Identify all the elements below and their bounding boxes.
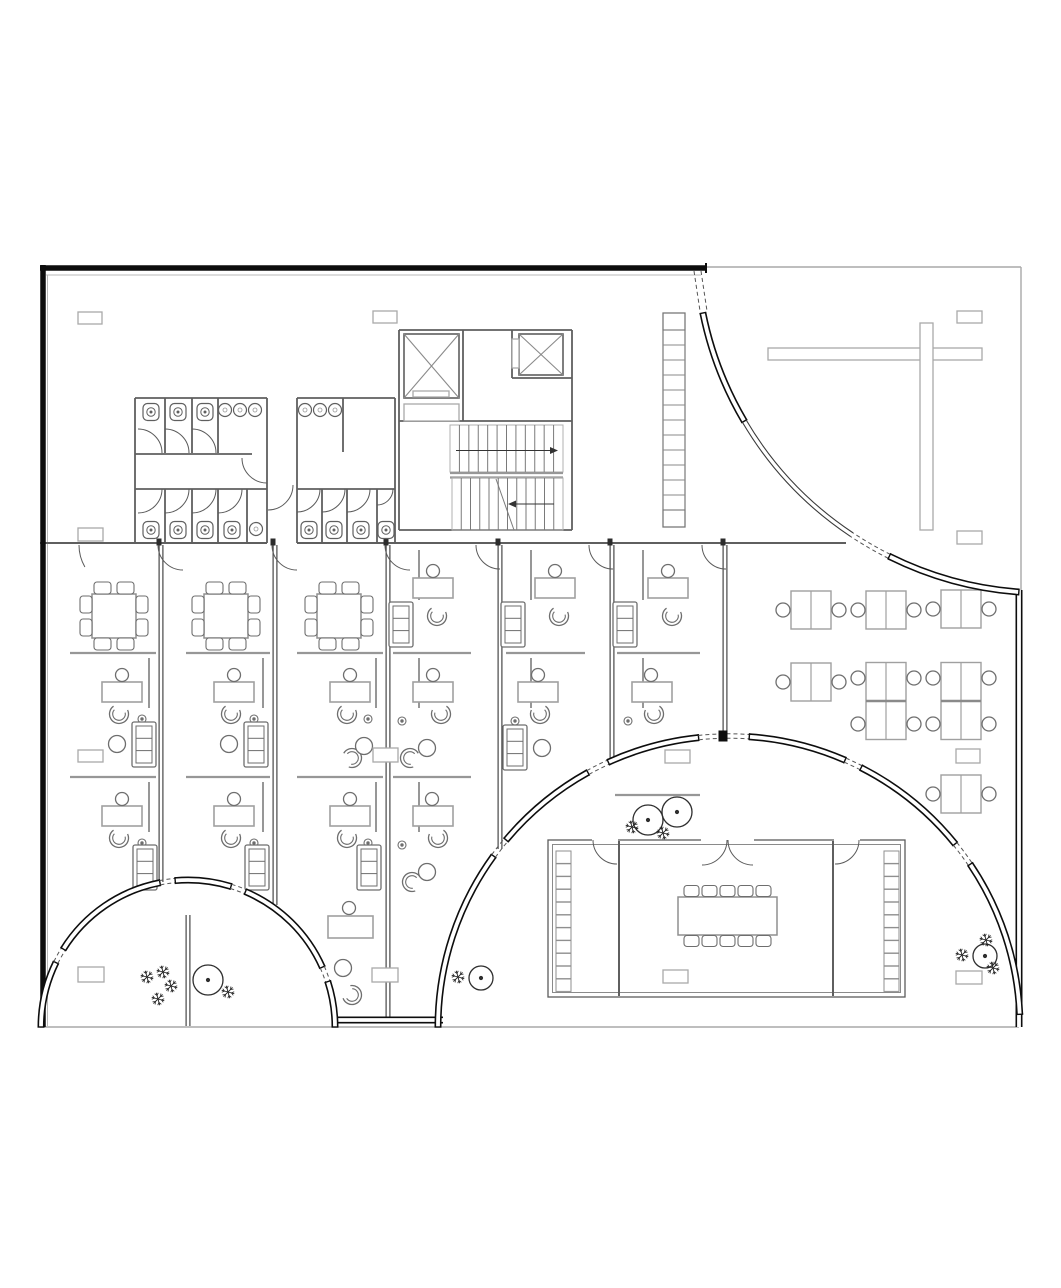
armchair: [666, 612, 679, 623]
armchair: [113, 834, 126, 845]
chair: [192, 596, 204, 613]
plant-pot: [253, 842, 255, 844]
chair: [926, 671, 940, 685]
armchair: [431, 612, 444, 623]
shrub: [166, 972, 169, 973]
chair: [192, 619, 204, 636]
shrub: [666, 833, 669, 834]
shrub: [980, 939, 983, 940]
cabinet: [372, 968, 398, 982]
shelf-unit: [556, 851, 571, 863]
dashed-guide: [726, 734, 749, 735]
shrub: [985, 934, 986, 937]
door-swing: [702, 840, 727, 865]
armchair: [225, 710, 238, 721]
curved-wall-segment: [970, 864, 1019, 1014]
door-swing: [702, 545, 726, 569]
door-swing: [377, 489, 393, 505]
cabinet: [956, 971, 982, 984]
office-desk: [632, 682, 672, 702]
chair: [136, 596, 148, 613]
shrub: [146, 971, 147, 974]
shrub: [457, 971, 458, 974]
cabinet: [663, 970, 688, 983]
round-table: [109, 736, 126, 753]
curved-wall-segment: [63, 883, 160, 949]
toilet: [177, 411, 179, 413]
wall-post: [719, 731, 727, 741]
shelf-unit: [884, 851, 899, 863]
toilet: [231, 529, 233, 531]
chair: [117, 582, 134, 594]
shrub: [174, 986, 177, 987]
chair: [926, 602, 940, 616]
chair: [361, 619, 373, 636]
shelf-unit: [884, 979, 899, 991]
cabinet: [768, 348, 982, 360]
chair: [426, 793, 439, 806]
office-desk: [413, 806, 453, 826]
round-table: [221, 736, 238, 753]
chair: [206, 582, 223, 594]
chair: [343, 902, 356, 915]
dashed-guide: [699, 738, 722, 739]
shelf-unit: [556, 953, 571, 965]
plant-pot: [141, 718, 143, 720]
shrub: [157, 971, 160, 972]
door-swing: [218, 489, 242, 513]
shelf-unit: [556, 928, 571, 940]
faces-layer: [46, 275, 701, 1026]
shelf-unit: [884, 902, 899, 914]
curved-wall-segment: [889, 556, 1019, 592]
door-swing: [347, 489, 370, 512]
chair: [832, 675, 846, 689]
shelf-unit: [556, 966, 571, 978]
shrub: [662, 827, 663, 830]
office-desk: [648, 578, 688, 598]
chair: [662, 565, 675, 578]
shelf-unit: [556, 864, 571, 876]
office-desk: [102, 806, 142, 826]
dashed-guide: [694, 271, 700, 311]
sink: [329, 404, 342, 417]
shelf-unit: [556, 877, 571, 889]
plant-pot: [367, 842, 369, 844]
shrub: [965, 955, 968, 956]
shelf-unit: [884, 941, 899, 953]
chair: [738, 886, 753, 897]
door-swing: [728, 840, 753, 865]
armchair: [553, 612, 566, 623]
chair: [319, 582, 336, 594]
door-swing: [165, 429, 189, 453]
plant-pot: [141, 842, 143, 844]
plant-pot: [401, 844, 403, 846]
curved-wall-segment: [245, 892, 322, 968]
shelf-unit: [884, 953, 899, 965]
chair: [549, 565, 562, 578]
cabinet: [78, 750, 103, 762]
conference-table: [678, 897, 777, 935]
shrub: [152, 998, 155, 999]
shelf-unit: [884, 915, 899, 927]
chair: [982, 787, 996, 801]
chair: [738, 936, 753, 947]
shrub: [141, 976, 144, 977]
office-desk: [330, 682, 370, 702]
chair: [248, 619, 260, 636]
dashed-guide: [160, 883, 175, 885]
direction-arrow: [508, 501, 516, 508]
wall-cap: [1019, 589, 1020, 596]
door-jamb: [721, 539, 725, 545]
door-swing: [192, 429, 216, 453]
door-swing: [268, 485, 293, 510]
shrub: [461, 977, 464, 978]
toilet: [150, 529, 152, 531]
door-swing: [593, 840, 617, 864]
shrub: [635, 827, 638, 828]
armchair: [113, 710, 126, 721]
door-jamb: [384, 539, 388, 545]
toilet: [204, 411, 206, 413]
office-desk: [535, 578, 575, 598]
armchair: [432, 834, 445, 845]
chair: [702, 936, 717, 947]
toilet: [333, 529, 335, 531]
office-desk: [214, 806, 254, 826]
chair: [305, 619, 317, 636]
curved-wall-segment: [438, 856, 494, 1027]
chair: [684, 886, 699, 897]
floor-plan-page: [0, 0, 1061, 1288]
door-swing: [835, 840, 859, 864]
shelf-unit: [556, 889, 571, 901]
chair: [982, 717, 996, 731]
shrub: [626, 826, 629, 827]
door-swing: [192, 489, 216, 513]
armchair: [435, 710, 448, 721]
shrub: [165, 985, 168, 986]
office-desk: [518, 682, 558, 702]
sink: [250, 523, 263, 536]
chair: [851, 671, 865, 685]
door-swing: [138, 489, 162, 513]
cabinet: [957, 531, 982, 544]
chair: [926, 717, 940, 731]
shrub: [962, 958, 963, 961]
curved-wall-segment: [970, 864, 1019, 1014]
cabinet: [78, 312, 102, 324]
plant-pot: [627, 720, 629, 722]
door-swing: [589, 545, 613, 569]
shelf-unit: [556, 941, 571, 953]
cabinet: [78, 528, 103, 541]
door-swing: [79, 545, 85, 567]
chair: [756, 886, 771, 897]
door-jamb: [157, 539, 161, 545]
door-swing: [138, 429, 162, 453]
shrub: [632, 830, 633, 833]
curved-wall-segment: [703, 313, 744, 421]
sink: [249, 404, 262, 417]
armchair: [341, 710, 354, 721]
office-desk: [413, 578, 453, 598]
dashed-guide: [846, 758, 862, 766]
shrub: [147, 980, 148, 983]
shrub: [150, 977, 153, 978]
curved-wall-segment: [506, 772, 588, 839]
shrub: [989, 940, 992, 941]
shelf-unit: [884, 889, 899, 901]
dashed-guide: [698, 734, 721, 736]
chair: [684, 936, 699, 947]
armchair: [347, 752, 358, 765]
chair: [926, 787, 940, 801]
cabinet: [413, 391, 449, 397]
shrub: [961, 949, 962, 952]
cabinet: [78, 967, 104, 982]
chair: [907, 603, 921, 617]
sink: [299, 404, 312, 417]
dashed-guide: [701, 271, 707, 311]
cabinet: [512, 339, 519, 368]
door-jamb: [496, 539, 500, 545]
toilet: [150, 411, 152, 413]
chair: [361, 596, 373, 613]
dashed-guide: [853, 533, 890, 555]
door-swing: [165, 489, 189, 513]
round-table: [335, 960, 352, 977]
fixtures-layer: [78, 311, 982, 544]
curved-wall-segment: [438, 856, 494, 1027]
door-jamb: [608, 539, 612, 545]
chair: [342, 638, 359, 650]
chair: [776, 603, 790, 617]
chair: [427, 565, 440, 578]
dashed-guide: [726, 738, 749, 739]
cabinet: [665, 750, 690, 763]
office-desk: [214, 682, 254, 702]
shelf-unit: [884, 877, 899, 889]
shrub: [996, 968, 999, 969]
chair: [344, 669, 357, 682]
shelf-unit: [556, 902, 571, 914]
shelf-unit: [884, 928, 899, 940]
armchair: [341, 834, 354, 845]
plant-pot: [401, 720, 403, 722]
curved-wall-segment: [746, 420, 853, 533]
door-jamb: [271, 539, 275, 545]
meeting-table: [92, 594, 136, 638]
plant-pot: [514, 720, 516, 722]
cabinet: [404, 404, 459, 421]
shrub: [458, 980, 459, 983]
shrub: [170, 980, 171, 983]
round-table: [419, 864, 436, 881]
chair: [229, 582, 246, 594]
armchair: [225, 834, 238, 845]
shrub: [993, 971, 994, 974]
chair: [94, 582, 111, 594]
sink: [314, 404, 327, 417]
meeting-table: [204, 594, 248, 638]
chair: [702, 886, 717, 897]
chair: [342, 582, 359, 594]
chair: [982, 671, 996, 685]
cabinet: [957, 311, 982, 323]
door-swing: [476, 545, 500, 569]
office-desk: [102, 682, 142, 702]
dashed-guide: [320, 968, 325, 982]
dashed-guide: [589, 764, 609, 774]
dashed-guide: [54, 948, 62, 962]
chair: [117, 638, 134, 650]
armchair: [406, 876, 417, 889]
chair: [136, 619, 148, 636]
chair: [94, 638, 111, 650]
shrub: [158, 1002, 159, 1005]
door-swing: [297, 489, 320, 512]
shrub: [162, 966, 163, 969]
round-table: [419, 740, 436, 757]
tree: [646, 818, 649, 821]
floor-plan-canvas: [0, 0, 1061, 1288]
dashed-guide: [324, 966, 330, 981]
office-desk: [328, 916, 373, 938]
door-swing: [242, 458, 267, 483]
chair: [427, 669, 440, 682]
toilet: [385, 529, 387, 531]
tree: [983, 954, 986, 957]
round-table: [534, 740, 551, 757]
curved-wall-segment: [749, 737, 845, 760]
shelf-unit: [884, 864, 899, 876]
tree: [479, 976, 482, 979]
shrub: [227, 986, 228, 989]
round-table: [356, 738, 373, 755]
shrub: [171, 989, 172, 992]
cabinet: [373, 748, 398, 762]
chair: [80, 596, 92, 613]
chair: [832, 603, 846, 617]
chair: [720, 936, 735, 947]
armchair: [404, 752, 415, 765]
chair: [228, 793, 241, 806]
meeting-table: [317, 594, 361, 638]
chair: [851, 717, 865, 731]
plant-pot: [367, 718, 369, 720]
armchair: [534, 710, 547, 721]
furniture-layer: [78, 565, 996, 1005]
plant-pot: [253, 718, 255, 720]
chair: [305, 596, 317, 613]
shelf-unit: [556, 915, 571, 927]
chair: [907, 671, 921, 685]
structure-layer: [40, 539, 905, 1026]
doors-layer: [79, 429, 859, 865]
shrub: [956, 954, 959, 955]
toilet: [204, 529, 206, 531]
shrub: [228, 995, 229, 998]
tree: [206, 978, 209, 981]
toilet: [308, 529, 310, 531]
office-desk: [330, 806, 370, 826]
shrub: [161, 999, 164, 1000]
cabinet: [920, 323, 933, 530]
dashed-guide: [587, 760, 608, 770]
shrub: [452, 976, 455, 977]
cabinet: [373, 311, 397, 323]
shrub: [163, 975, 164, 978]
sink: [219, 404, 232, 417]
chair: [116, 669, 129, 682]
chair: [229, 638, 246, 650]
chair: [248, 596, 260, 613]
chair: [228, 669, 241, 682]
chair: [532, 669, 545, 682]
door-swing: [322, 489, 345, 512]
chair: [645, 669, 658, 682]
dashed-guide: [230, 889, 244, 894]
shelf-unit: [884, 966, 899, 978]
shrub: [663, 836, 664, 839]
toilet: [360, 529, 362, 531]
chair: [80, 619, 92, 636]
shrub: [157, 993, 158, 996]
chair: [206, 638, 223, 650]
sink: [234, 404, 247, 417]
shrub: [222, 991, 225, 992]
shelf-unit: [556, 979, 571, 991]
cabinet: [956, 749, 980, 763]
dashed-guide: [844, 762, 860, 770]
tree: [675, 810, 678, 813]
shrub: [631, 821, 632, 824]
curved-wall-segment: [63, 883, 160, 949]
curved-wall-segment: [245, 892, 322, 968]
chair: [116, 793, 129, 806]
chair: [982, 602, 996, 616]
toilet: [177, 529, 179, 531]
dashed-guide: [232, 884, 247, 889]
chair: [720, 886, 735, 897]
chair: [776, 675, 790, 689]
shrub: [231, 992, 234, 993]
chair: [756, 936, 771, 947]
chair: [907, 717, 921, 731]
armchair: [648, 710, 661, 721]
chair: [851, 603, 865, 617]
dashed-guide: [851, 537, 889, 559]
office-desk: [413, 682, 453, 702]
chair: [319, 638, 336, 650]
chair: [344, 793, 357, 806]
armchair: [347, 989, 359, 1002]
wall-cap: [175, 877, 176, 884]
